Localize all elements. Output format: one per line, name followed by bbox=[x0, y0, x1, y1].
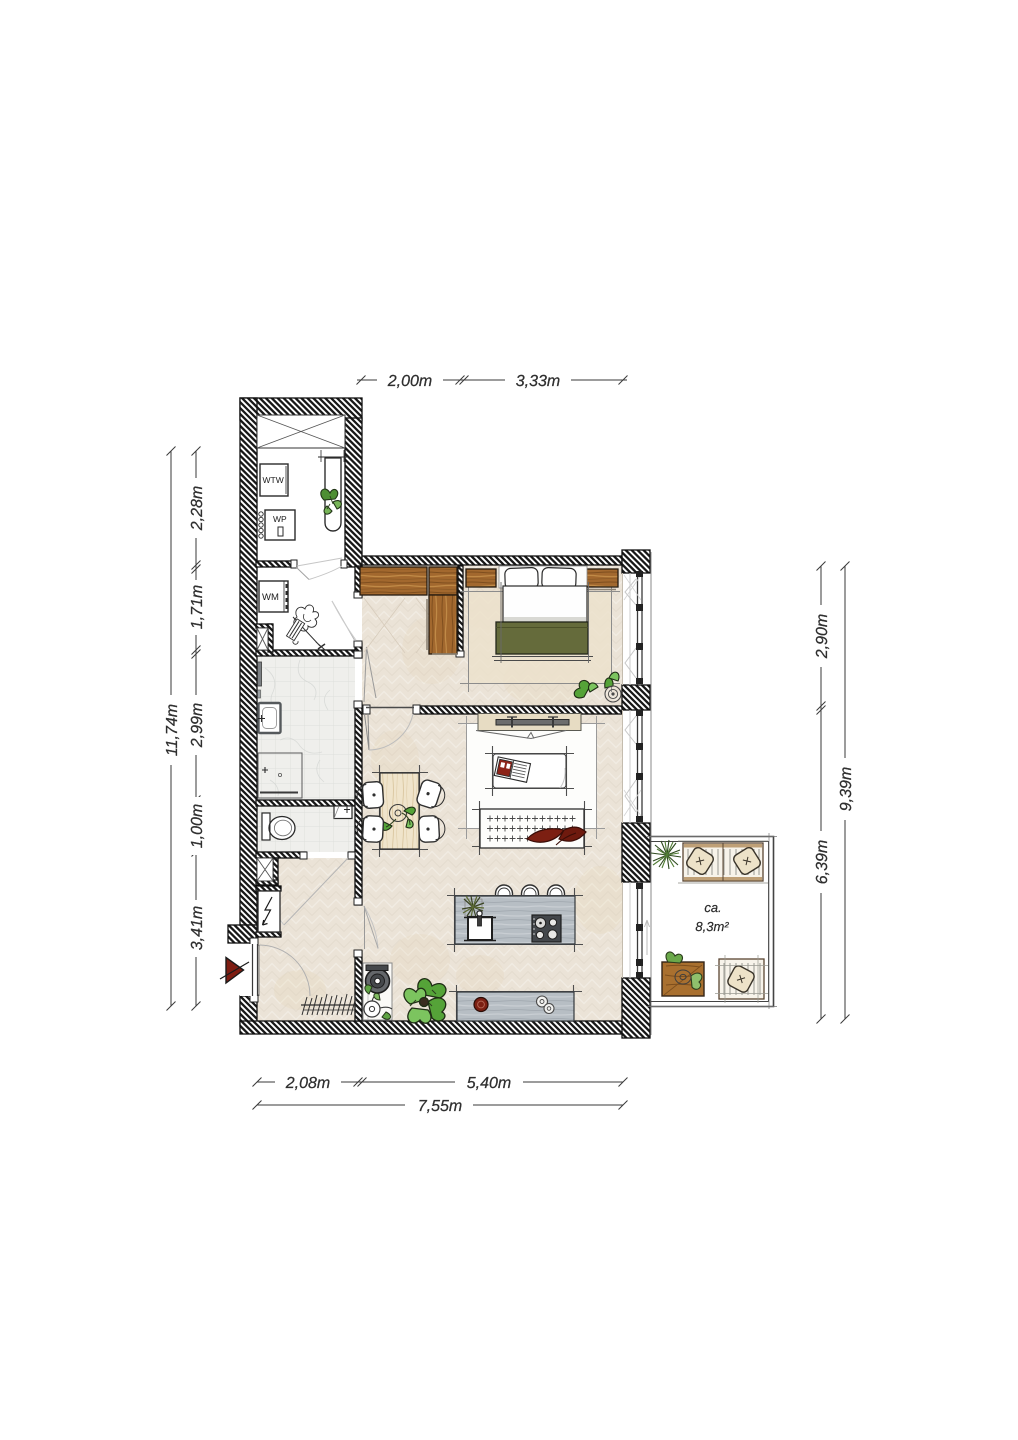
svg-text:WTW: WTW bbox=[263, 475, 284, 485]
svg-text:5,40m: 5,40m bbox=[467, 1075, 511, 1092]
svg-text:6,39m: 6,39m bbox=[814, 840, 831, 884]
svg-text:2,00m: 2,00m bbox=[387, 373, 432, 390]
svg-text:1,00m: 1,00m bbox=[189, 804, 206, 848]
svg-text:1,71m: 1,71m bbox=[189, 585, 206, 629]
svg-text:11,74m: 11,74m bbox=[164, 704, 181, 756]
svg-text:3,41m: 3,41m bbox=[189, 906, 206, 950]
svg-text:3,33m: 3,33m bbox=[516, 373, 560, 390]
svg-text:9,39m: 9,39m bbox=[838, 767, 855, 811]
svg-text:2,08m: 2,08m bbox=[285, 1075, 330, 1092]
svg-text:WM: WM bbox=[262, 592, 279, 603]
svg-text:2,90m: 2,90m bbox=[814, 614, 831, 659]
svg-text:2,28m: 2,28m bbox=[189, 486, 206, 531]
svg-text:ca.: ca. bbox=[704, 900, 721, 915]
svg-text:8,3m²: 8,3m² bbox=[695, 919, 729, 934]
svg-text:2,99m: 2,99m bbox=[189, 703, 206, 748]
svg-text:7,55m: 7,55m bbox=[418, 1098, 462, 1115]
svg-text:WP: WP bbox=[273, 514, 287, 524]
